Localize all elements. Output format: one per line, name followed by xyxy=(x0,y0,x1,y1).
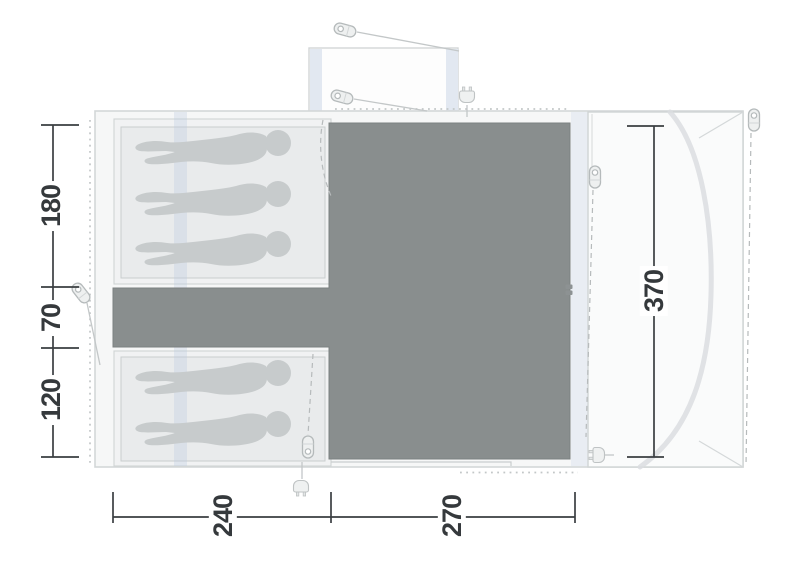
power-plug-icon xyxy=(460,87,475,103)
tent-peg-icon xyxy=(70,281,92,305)
floorplan-diagram: 180 70 120 240 270 370 xyxy=(0,0,800,564)
tent-peg-icon xyxy=(303,436,314,458)
dimension-label-180: 180 xyxy=(37,181,65,231)
floorplan-canvas xyxy=(0,0,800,564)
air-beam-band xyxy=(446,49,458,112)
dimension-label-120: 120 xyxy=(37,375,65,425)
tent-peg-icon xyxy=(749,109,760,131)
tent-peg-icon xyxy=(333,22,357,38)
dimension-line-bottom xyxy=(113,492,575,523)
rear-door-canopy xyxy=(309,48,458,112)
dimension-label-270: 270 xyxy=(438,491,466,541)
air-beam-band xyxy=(571,112,588,466)
power-plug-icon xyxy=(294,481,309,497)
tent-peg-icon xyxy=(590,166,601,188)
air-beam-band xyxy=(310,49,322,112)
dimension-label-370: 370 xyxy=(640,266,668,316)
dimension-label-240: 240 xyxy=(209,491,237,541)
dimension-label-70: 70 xyxy=(37,300,65,336)
